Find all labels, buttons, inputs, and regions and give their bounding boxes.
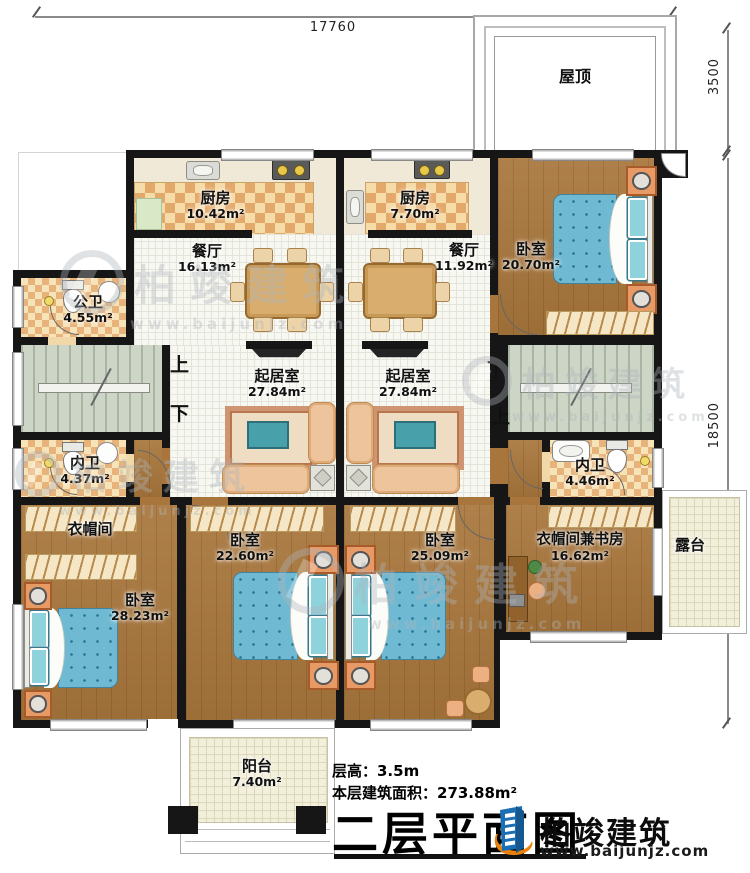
nightstand-lamp-icon [626,284,657,314]
nightstand-lamp-icon [345,545,376,574]
mattress [233,572,298,660]
headboard [24,608,30,688]
lamp-icon [640,456,650,466]
sofa [346,402,374,464]
chair [319,282,334,302]
nightstand-lamp-icon [626,166,657,196]
pillow [30,648,48,685]
tv-icon [370,349,424,358]
stairs-right-down-label: 下 [487,355,506,382]
window [530,631,627,643]
desk [508,556,528,622]
pillow [628,240,647,281]
stove-icon [272,160,310,180]
chair [370,317,390,332]
stove-icon [414,160,450,179]
room-label-bedroom-top: 卧室20.70m² [486,241,576,273]
door-opening-balcony [148,719,178,729]
wardrobe-rack [548,506,654,528]
room-label-kitchen-1: 厨房10.42m² [163,190,268,222]
wardrobe-rack [546,311,654,335]
wardrobe-rack [190,506,324,532]
balcony-post [296,806,326,834]
chair [230,282,245,302]
terrace-frame [662,490,747,634]
room-label-public-bath: 公卫4.55m² [48,294,128,326]
dining-table [245,263,321,319]
kitchen-sink-icon [186,161,220,180]
room-label-bedroom-mid: 卧室22.60m² [200,532,290,564]
room-label-bath-right: 内卫4.46m² [550,457,630,489]
chair [253,248,273,263]
roof-outline: 屋顶 [473,15,677,155]
roof-contour-left [18,152,131,274]
door-opening-bedroom-top [490,295,498,333]
tv-icon [252,349,306,358]
stairs-left-up-label: 上 [170,350,189,377]
window [12,286,24,328]
room-label-living-1: 起居室27.84m² [232,368,322,400]
pillow [628,198,647,239]
pillow [351,576,370,616]
end-table [310,465,335,491]
dimension-line-roof [727,30,729,152]
headboard [647,194,654,284]
door-opening-bath-right [542,452,550,482]
sofa [308,402,336,464]
roof-inner-frame-2 [494,36,656,153]
wardrobe-rack [25,554,137,580]
dimension-tick [722,717,731,729]
headboard [327,572,334,660]
window [532,149,634,161]
dimension-roof-value: 3500 [707,58,722,95]
chair [435,282,450,302]
computer-icon [509,594,525,607]
pillow [351,616,370,656]
door-opening-bedroom-mid [192,497,228,505]
window [12,448,24,490]
stairs-right-up-label: 上 [491,402,510,429]
chair [253,317,273,332]
dimension-top-value: 17760 [290,20,376,35]
nightstand-lamp-icon [308,545,339,574]
end-table [346,465,371,491]
desk-chair [528,582,546,600]
tv-wall-1 [246,341,312,349]
floor-height-text: 层高：3.5m [332,760,419,781]
window [370,719,472,731]
kitchen-sink-icon [346,190,364,224]
bed [233,572,334,660]
door-opening-corridor-right [490,448,508,484]
nightstand-lamp-icon [24,690,52,718]
window [371,149,473,161]
room-label-bath-left: 内卫4.37m² [45,455,125,487]
roof-label: 屋顶 [475,63,675,87]
room-label-cloakroom: 衣帽间 [45,521,135,538]
tv-wall-2 [362,341,428,349]
brand-logo-icon [486,804,536,858]
pillow [30,611,48,648]
window [652,448,664,488]
room-label-bedroom-left: 卧室28.23m² [95,592,185,624]
fridge-icon [136,198,162,230]
mattress [381,572,446,660]
window [221,149,314,161]
sofa [372,464,460,494]
room-label-living-2: 起居室27.84m² [363,368,453,400]
nightstand-lamp-icon [308,661,339,690]
door-opening-study [510,497,540,505]
kitchen-1-partition-wall [134,230,252,238]
floor-plan-canvas: 17760 3500 18500 屋顶 [0,0,750,873]
room-label-dining-1: 餐厅16.13m² [162,243,252,275]
chair [348,282,363,302]
chair [403,317,423,332]
coffee-table [247,421,289,449]
door-opening-public-bath [48,337,76,345]
headboard [345,572,352,660]
sofa [222,464,310,494]
brand-url: www.baijunjz.com [540,842,709,860]
stairs-left-down-label: 下 [170,399,189,426]
chair [472,666,490,683]
pillow [309,576,328,616]
chair [446,700,464,717]
round-table [464,688,492,715]
room-label-balcony: 阳台7.40m² [212,758,302,790]
window [12,604,24,690]
window [50,719,147,731]
door-opening-cloakroom [140,497,170,505]
room-label-terrace: 露台 [650,537,730,554]
terrace-floor [669,497,740,627]
room-label-kitchen-2: 厨房7.70m² [365,190,465,222]
door-opening-bedroom-right [458,497,494,505]
balcony-post [168,806,198,834]
coffee-table [394,421,436,449]
dimension-line-main [727,158,729,724]
chair [287,317,307,332]
stair-rail [38,383,150,393]
room-label-bedroom-right: 卧室25.09m² [395,532,485,564]
chair [370,248,390,263]
nightstand-lamp-icon [345,661,376,690]
room-label-study: 衣帽间兼书房16.62m² [518,532,642,563]
balcony-frame-line [185,841,330,842]
pillow [309,616,328,656]
bed [345,572,446,660]
dimension-main-value: 18500 [707,402,722,448]
nightstand-lamp-icon [24,582,52,610]
chair [287,248,307,263]
door-opening-bath-left [126,454,134,482]
wardrobe-rack [350,506,456,532]
kitchen-2-partition-wall [368,230,472,238]
balcony-frame [180,728,335,854]
window [12,352,24,426]
